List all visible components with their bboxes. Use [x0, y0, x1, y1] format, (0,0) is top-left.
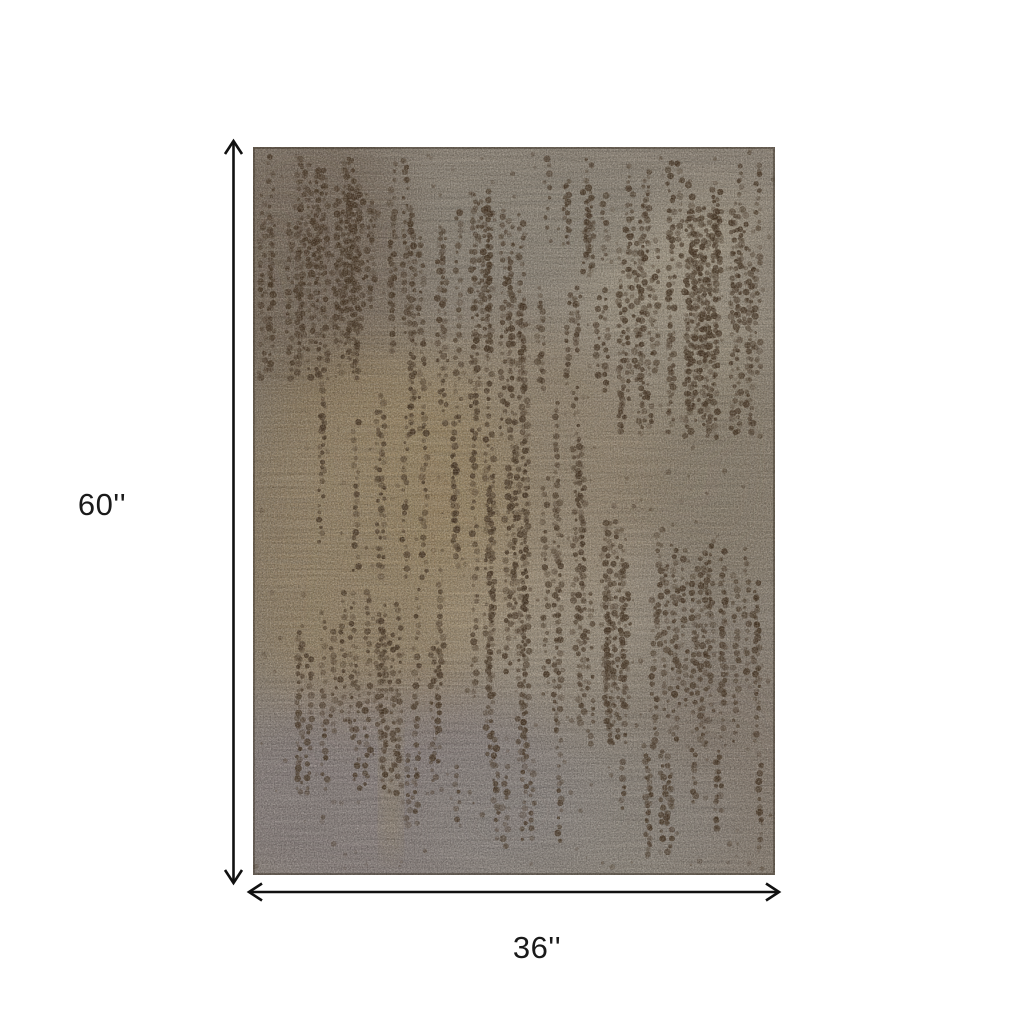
rug-image — [253, 147, 775, 875]
rug-dimension-diagram: 60'' 36'' — [0, 0, 1024, 1024]
rug-texture — [253, 147, 775, 875]
width-dimension-label: 36'' — [492, 931, 582, 965]
height-dimension-label: 60'' — [57, 488, 147, 522]
width-dimension-arrow — [246, 882, 782, 902]
height-dimension-arrow — [224, 138, 244, 888]
